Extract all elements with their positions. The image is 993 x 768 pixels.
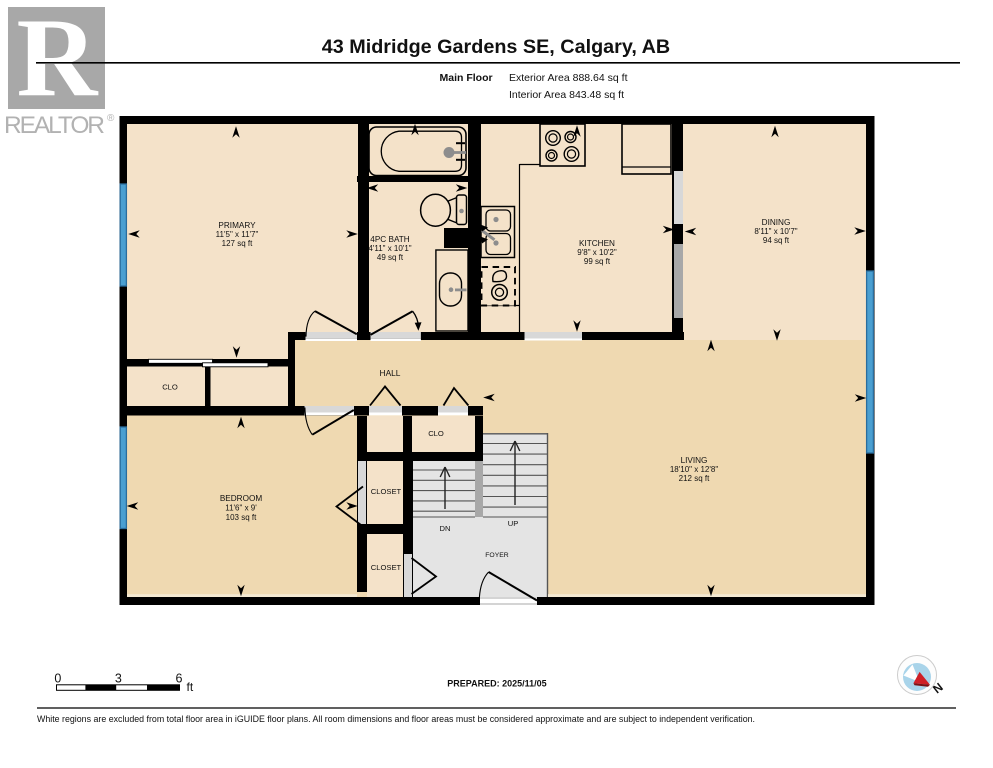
svg-text:49 sq ft: 49 sq ft xyxy=(377,253,404,262)
svg-text:CLOSET: CLOSET xyxy=(371,487,402,496)
svg-text:8'11" x 10'7": 8'11" x 10'7" xyxy=(754,227,797,236)
svg-text:11'5" x 11'7": 11'5" x 11'7" xyxy=(216,230,259,239)
svg-text:REALTOR: REALTOR xyxy=(4,112,105,139)
svg-text:94 sq ft: 94 sq ft xyxy=(763,236,790,245)
svg-text:Main Floor: Main Floor xyxy=(440,72,493,84)
svg-text:LIVING: LIVING xyxy=(681,456,708,465)
svg-text:®: ® xyxy=(107,113,115,124)
svg-text:Interior Area 843.48 sq ft: Interior Area 843.48 sq ft xyxy=(509,89,624,101)
svg-text:4PC BATH: 4PC BATH xyxy=(370,235,410,244)
svg-text:11'6" x 9': 11'6" x 9' xyxy=(225,504,257,513)
svg-text:4'11" x 10'1": 4'11" x 10'1" xyxy=(368,244,411,253)
svg-text:6: 6 xyxy=(176,672,183,686)
svg-text:103 sq ft: 103 sq ft xyxy=(226,513,257,522)
svg-text:KITCHEN: KITCHEN xyxy=(579,239,615,248)
svg-text:ft: ft xyxy=(187,680,194,694)
svg-text:White regions are excluded fro: White regions are excluded from total fl… xyxy=(37,714,755,725)
svg-text:9'8" x 10'2": 9'8" x 10'2" xyxy=(577,248,617,257)
svg-text:127 sq ft: 127 sq ft xyxy=(222,239,253,248)
svg-text:CLO: CLO xyxy=(162,383,178,392)
svg-text:Exterior Area 888.64 sq ft: Exterior Area 888.64 sq ft xyxy=(509,72,628,84)
svg-text:212 sq ft: 212 sq ft xyxy=(679,474,710,483)
svg-text:FOYER: FOYER xyxy=(485,552,509,559)
svg-text:43 Midridge Gardens SE, Calgar: 43 Midridge Gardens SE, Calgary, AB xyxy=(322,36,670,58)
svg-text:BEDROOM: BEDROOM xyxy=(220,494,262,503)
svg-text:PRIMARY: PRIMARY xyxy=(218,221,256,230)
svg-text:CLOSET: CLOSET xyxy=(371,563,402,572)
svg-text:3: 3 xyxy=(115,672,122,686)
svg-text:UP: UP xyxy=(508,519,519,528)
svg-text:PREPARED: 2025/11/05: PREPARED: 2025/11/05 xyxy=(447,679,546,689)
svg-text:DN: DN xyxy=(440,524,451,533)
svg-text:99 sq ft: 99 sq ft xyxy=(584,257,611,266)
svg-text:CLO: CLO xyxy=(428,429,444,438)
svg-text:HALL: HALL xyxy=(380,368,401,378)
svg-text:R: R xyxy=(17,0,99,120)
svg-text:18'10" x 12'8": 18'10" x 12'8" xyxy=(670,465,718,474)
svg-text:0: 0 xyxy=(54,672,61,686)
svg-text:DINING: DINING xyxy=(762,218,791,227)
